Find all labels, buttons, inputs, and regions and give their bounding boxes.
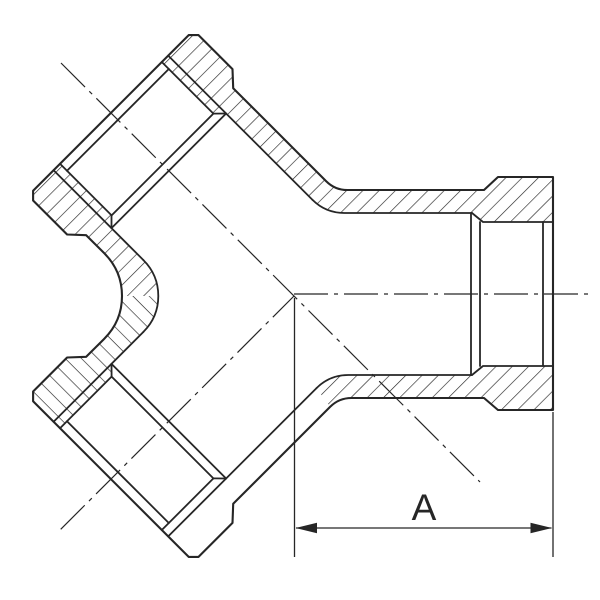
centerline-lower-branch xyxy=(61,296,294,529)
dimension-arrow-right xyxy=(531,523,553,533)
technical-drawing: A xyxy=(0,0,600,600)
hatch-bottom-wall xyxy=(316,366,553,410)
bore-line-upper-outer-side xyxy=(168,56,312,200)
dimension-label: A xyxy=(412,487,437,528)
hatch-top-wall xyxy=(162,35,553,222)
paths-layer xyxy=(33,35,592,557)
hatch-crotch-upper xyxy=(33,164,158,296)
thread-line-lower-outer-side xyxy=(162,478,214,530)
diagram-canvas: A xyxy=(0,0,600,600)
dimension-arrow-left xyxy=(296,523,318,533)
hatch-crotch-lower xyxy=(33,296,158,428)
